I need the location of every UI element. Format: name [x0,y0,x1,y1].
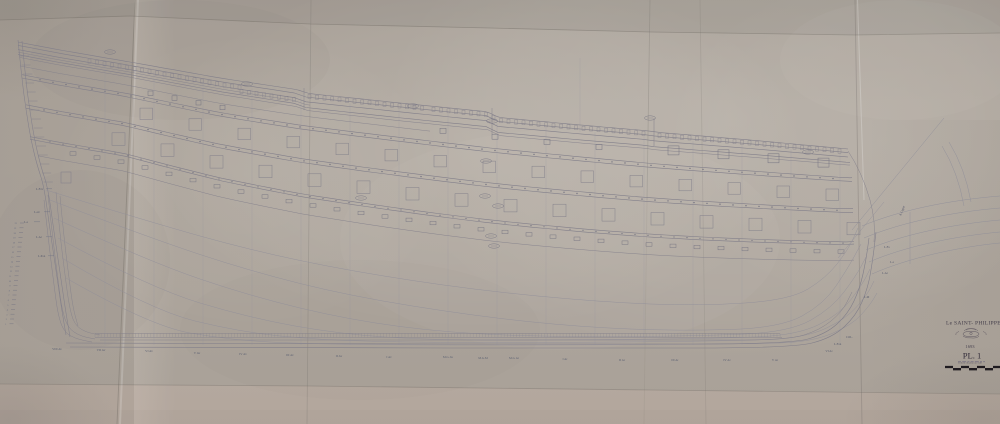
svg-text:1693: 1693 [965,344,975,349]
svg-text:COL.: COL. [846,335,853,339]
svg-text:V Av: V Av [194,351,201,355]
svg-text:II Ar: II Ar [619,358,626,362]
svg-text:IV Av: IV Av [239,352,247,356]
svg-text:L.Ac: L.Ac [36,235,43,239]
svg-text:L.Pon: L.Pon [38,254,46,258]
svg-text:L.Fav: L.Fav [36,187,44,191]
svg-text:IV Ar: IV Ar [723,358,731,362]
svg-text:III Av: III Av [286,353,294,357]
svg-text:L.Fon: L.Fon [834,342,842,346]
svg-text:VI Av: VI Av [145,349,153,353]
svg-text:III Ar: III Ar [671,358,679,362]
svg-text:L.ad: L.ad [34,210,40,214]
svg-text:M.G Av: M.G Av [443,355,454,359]
svg-text:M.G.M: M.G.M [478,356,488,360]
svg-text:L.Ac: L.Ac [882,271,889,275]
svg-text:PL. 1: PL. 1 [963,351,982,361]
svg-text:VII Av: VII Av [97,348,106,352]
svg-text:L.a: L.a [24,220,29,224]
svg-text:L.Fa: L.Fa [884,245,890,249]
svg-text:V Ar: V Ar [772,358,779,362]
svg-text:L.a: L.a [890,260,895,264]
svg-text:M.G Ar: M.G Ar [509,356,520,360]
svg-text:VI Ar: VI Ar [825,349,833,353]
svg-text:L.M: L.M [864,295,870,299]
svg-text:I Av: I Av [386,355,392,359]
svg-text:Echelle du plan au 1/48: Echelle du plan au 1/48 [958,362,982,365]
svg-text:Le SAINT- PHILIPPE: Le SAINT- PHILIPPE [946,321,1000,327]
svg-text:VIII Av: VIII Av [52,347,62,351]
svg-text:II Av: II Av [336,354,343,358]
